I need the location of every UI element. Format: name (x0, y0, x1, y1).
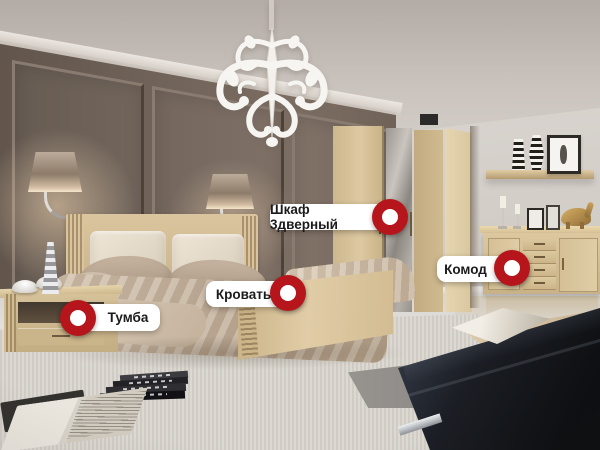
hotspot-label-text: Комод (444, 262, 487, 277)
decor-bowl (12, 280, 38, 293)
door-handle (562, 258, 564, 270)
nightstand-post (4, 294, 16, 352)
hotspot-marker-icon[interactable] (60, 300, 96, 336)
photo-frame (527, 208, 544, 230)
wardrobe-door-right (414, 130, 443, 312)
hotspot-label-text: Шкаф 3дверный (270, 202, 370, 232)
drawer-handle (534, 282, 545, 284)
striped-vase (512, 139, 525, 170)
commode-door (559, 238, 598, 292)
candlestick-base (498, 226, 507, 229)
picture-figure (560, 145, 567, 164)
drawer-handle (534, 243, 545, 245)
wardrobe-corner-unit (445, 128, 472, 312)
hotspot-marker-icon[interactable] (270, 275, 306, 311)
hotspot-label-text: Тумба (108, 310, 149, 325)
marker-dot (504, 260, 520, 276)
marker-dot (280, 285, 296, 301)
hotspot-marker-icon[interactable] (372, 199, 408, 235)
elephant-leg (580, 222, 584, 229)
hotspot-marker-icon[interactable] (494, 250, 530, 286)
candlestick-base (513, 226, 521, 229)
bedroom-photo: Шкаф 3дверный Кровать Комод Тумба (0, 0, 600, 450)
elephant-leg (566, 222, 570, 229)
drawer-handle (534, 256, 545, 258)
drawer-handle (534, 269, 545, 271)
wall-sconce-right (206, 174, 254, 209)
candle (515, 204, 520, 214)
commode-drawer (523, 277, 556, 290)
photo-frame (546, 205, 560, 230)
wardrobe-handle (410, 212, 412, 236)
marker-dot (70, 310, 86, 326)
drawer-handle (52, 335, 70, 337)
candle (500, 196, 506, 208)
box-on-wardrobe (420, 114, 438, 125)
hotspot-label-text: Кровать (216, 287, 271, 302)
commode-drawer (523, 238, 556, 251)
chandelier (202, 0, 342, 150)
wall-sconce-left (28, 152, 82, 192)
marker-dot (382, 209, 398, 225)
candlestick-stem (502, 208, 504, 228)
